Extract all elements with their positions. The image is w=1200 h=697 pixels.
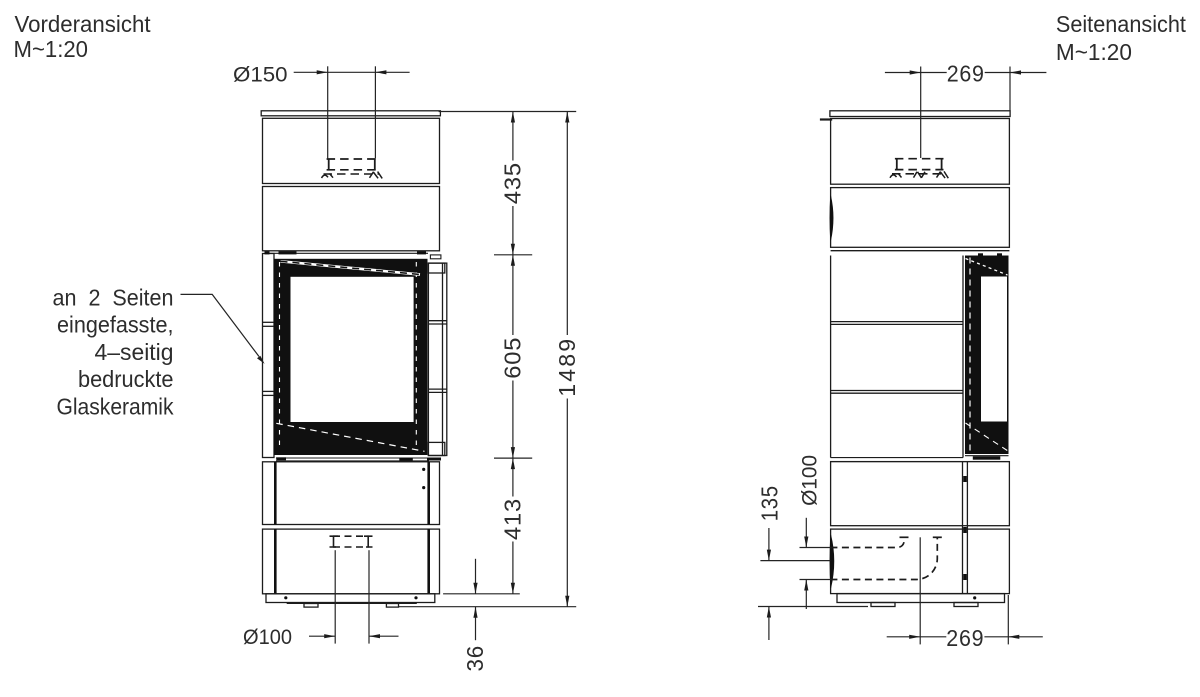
svg-text:36: 36 (462, 645, 488, 672)
svg-text:Ø150: Ø150 (233, 63, 288, 87)
svg-text:Vorderansicht: Vorderansicht (15, 11, 152, 37)
svg-text:Ø100: Ø100 (243, 625, 292, 649)
svg-text:bedruckte: bedruckte (78, 366, 174, 392)
svg-text:1489: 1489 (554, 337, 580, 397)
svg-text:Ø100: Ø100 (798, 455, 822, 506)
svg-text:Glaskeramik: Glaskeramik (57, 393, 174, 419)
svg-text:an 2 Seiten: an 2 Seiten (53, 285, 174, 311)
svg-text:435: 435 (500, 162, 526, 204)
svg-text:413: 413 (500, 498, 526, 540)
svg-text:Seitenansicht: Seitenansicht (1056, 11, 1187, 37)
svg-text:eingefasste,: eingefasste, (57, 312, 174, 338)
svg-text:269: 269 (946, 625, 984, 651)
svg-text:4–seitig: 4–seitig (95, 339, 174, 365)
svg-text:M~1:20: M~1:20 (1056, 39, 1132, 65)
svg-text:135: 135 (757, 485, 783, 521)
svg-text:M~1:20: M~1:20 (14, 36, 89, 62)
svg-text:605: 605 (500, 337, 526, 379)
svg-text:269: 269 (947, 61, 985, 87)
